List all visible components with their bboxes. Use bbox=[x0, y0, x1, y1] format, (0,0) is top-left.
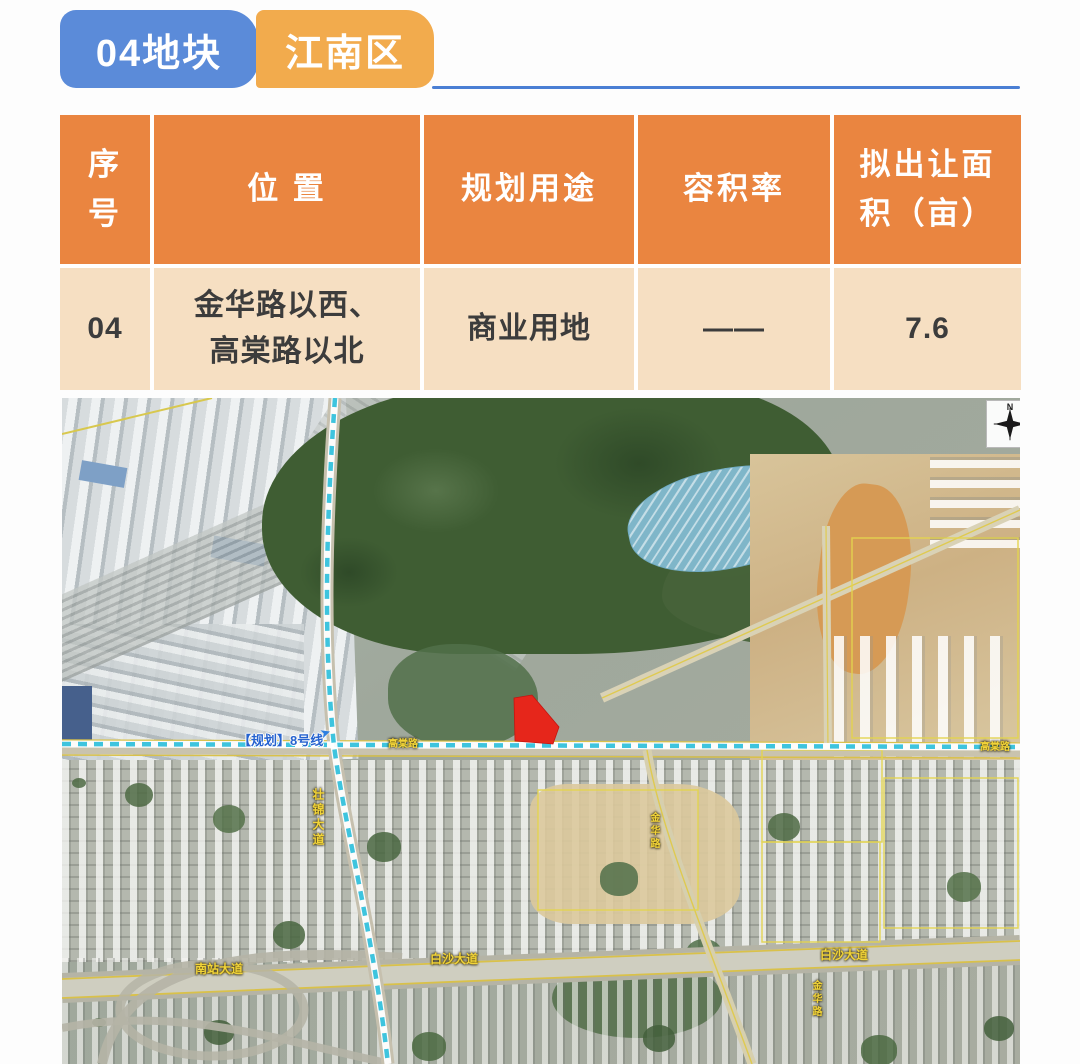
nanzhan-avenue-label: 南站大道 bbox=[195, 960, 243, 977]
cell-no: 04 bbox=[60, 268, 150, 390]
cell-area: 7.6 bbox=[834, 268, 1021, 390]
satellite-map: 【规划】8号线 ➤ 壮锦大道 高棠路 高棠路 南站大道 白沙大道 白沙大道 金华… bbox=[62, 398, 1020, 1064]
col-header-plot-ratio: 容积率 bbox=[638, 115, 830, 264]
col-header-no: 序 号 bbox=[60, 115, 150, 264]
header: 04地块 江南区 bbox=[60, 10, 1020, 90]
col-header-area: 拟出让面 积（亩） bbox=[834, 115, 1021, 264]
jinhua-road-label-lower: 金华路 bbox=[808, 980, 823, 1019]
parcel-table: 序 号 位 置 规划用途 容积率 拟出让面 积（亩） 04 金华路以西、 高棠路… bbox=[60, 115, 1021, 390]
page: 04地块 江南区 序 号 位 置 规划用途 容积率 拟出让面 积（亩） 04 金… bbox=[0, 0, 1080, 1064]
metro-line8-label: 【规划】8号线 bbox=[238, 730, 323, 749]
tab-parcel-number: 04地块 bbox=[60, 10, 258, 88]
gaotang-road-label-right: 高棠路 bbox=[980, 738, 1010, 753]
compass-n-label: N bbox=[1007, 402, 1014, 412]
col-header-location: 位 置 bbox=[154, 115, 420, 264]
cell-usage: 商业用地 bbox=[424, 268, 634, 390]
gaotang-road-label-left: 高棠路 bbox=[388, 735, 418, 750]
topleft-road bbox=[62, 398, 212, 434]
baisha-avenue-label-center: 白沙大道 bbox=[430, 950, 478, 967]
cadastre-outlines bbox=[538, 538, 1018, 942]
parcel-04-polygon bbox=[514, 695, 559, 744]
zhuangjin-avenue-label: 壮锦大道 bbox=[310, 788, 327, 848]
jinhua-road bbox=[647, 750, 752, 1064]
col-header-usage: 规划用途 bbox=[424, 115, 634, 264]
tab-parcel-number-label: 04地块 bbox=[96, 22, 222, 77]
cell-plot-ratio: —— bbox=[638, 268, 830, 390]
jinhua-road-label-upper: 金华路 bbox=[646, 812, 661, 851]
north-compass: N bbox=[986, 400, 1020, 448]
tab-district-label: 江南区 bbox=[285, 22, 405, 77]
cell-location: 金华路以西、 高棠路以北 bbox=[154, 268, 420, 390]
metro8-casing bbox=[62, 744, 1020, 747]
baisha-avenue-label-right: 白沙大道 bbox=[820, 946, 868, 963]
tab-district: 江南区 bbox=[256, 10, 434, 88]
header-underline bbox=[432, 86, 1020, 89]
